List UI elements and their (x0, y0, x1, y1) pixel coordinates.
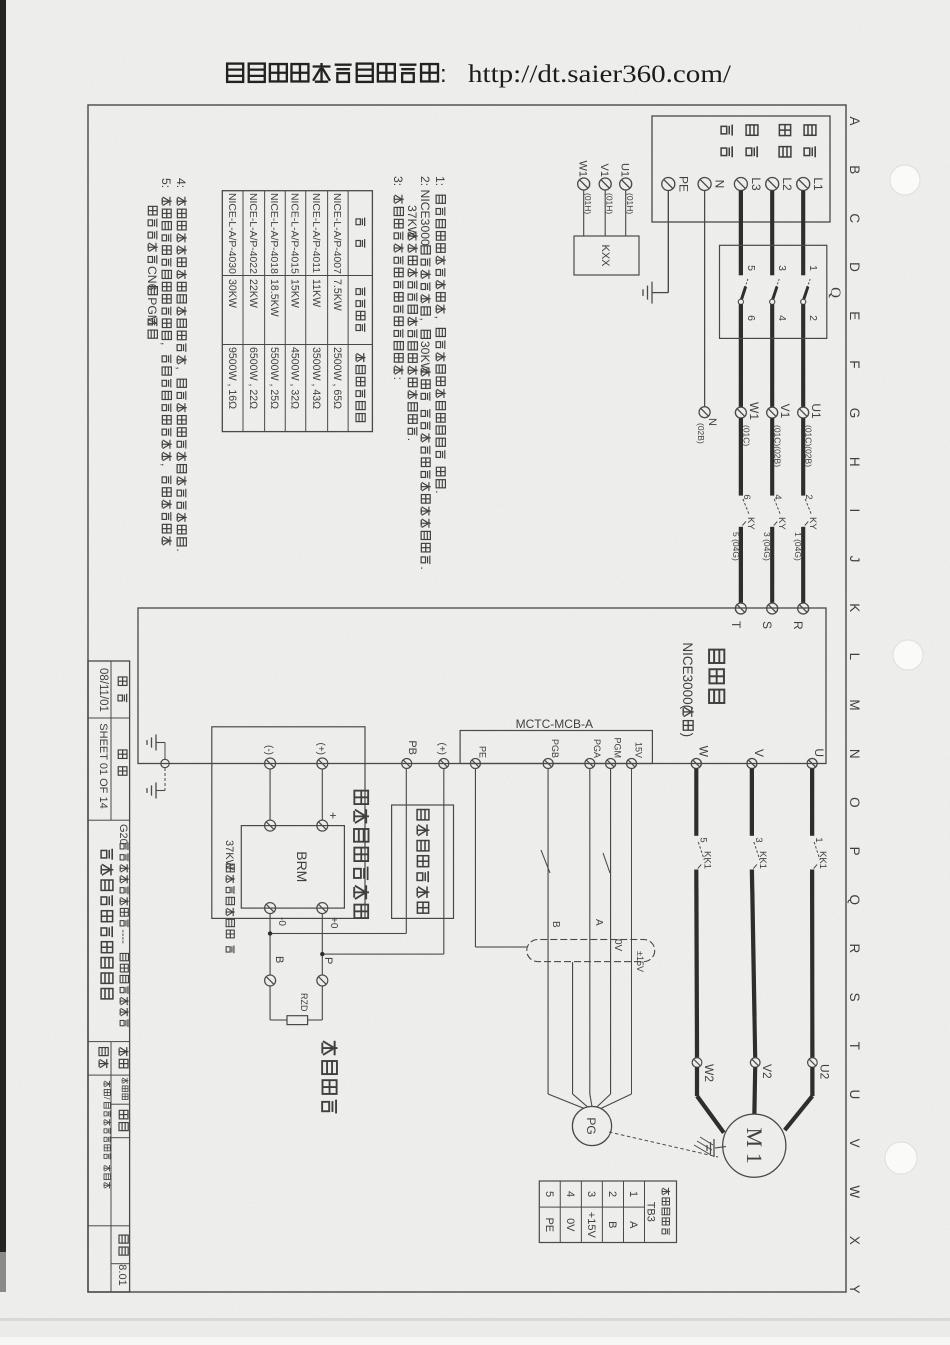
svg-text:3: 3 (776, 265, 788, 271)
svg-text:(01C)(02B): (01C)(02B) (773, 425, 783, 467)
svg-text:1: 1 (627, 1191, 639, 1197)
svg-text:(02B): (02B) (696, 423, 706, 444)
svg-text:N: N (847, 749, 862, 759)
svg-text:NICE-L-A/P-4030: NICE-L-A/P-4030 (226, 193, 237, 274)
svg-text:30KW: 30KW (226, 279, 238, 308)
svg-text::: : (440, 61, 447, 88)
svg-text:W: W (696, 746, 710, 758)
svg-text:W1: W1 (747, 402, 761, 420)
svg-text:2: 2 (807, 315, 819, 321)
svg-text:TB3: TB3 (645, 1202, 657, 1222)
svg-text:A: A (627, 1221, 639, 1229)
svg-text:2: NICE3000: 2: NICE3000 (418, 176, 432, 246)
svg-text:3500W , 43Ω: 3500W , 43Ω (310, 347, 322, 409)
svg-text:1: 1 (813, 837, 824, 842)
svg-text:X: X (847, 1236, 862, 1245)
svg-text:.: . (174, 548, 188, 551)
svg-text:L3: L3 (749, 177, 763, 191)
svg-text:PG: PG (584, 1117, 598, 1134)
svg-text:,: , (433, 316, 447, 319)
svg-text:NICE3000(: NICE3000( (680, 642, 695, 709)
svg-text:.: . (418, 566, 432, 569)
svg-text:H: H (847, 457, 862, 467)
svg-text:3: 3 (585, 1191, 597, 1197)
svg-text:BRM: BRM (294, 851, 310, 882)
svg-text:6: 6 (745, 315, 757, 321)
svg-text:3: 3 (753, 837, 764, 842)
svg-text:8.01: 8.01 (116, 1264, 128, 1285)
svg-text:L2: L2 (780, 177, 794, 191)
svg-text:15KW: 15KW (289, 279, 301, 308)
svg-text:N: N (706, 418, 718, 426)
svg-text:5: 5 (745, 265, 757, 271)
svg-text:+15V: +15V (585, 1212, 597, 1239)
svg-text:11KW: 11KW (310, 279, 322, 307)
svg-text:V1: V1 (778, 404, 792, 419)
svg-text:.: . (433, 490, 447, 493)
svg-text:RZD: RZD (299, 993, 309, 1012)
svg-text:Q: Q (827, 287, 843, 298)
svg-text:0V: 0V (612, 939, 623, 952)
svg-text:U: U (812, 748, 826, 757)
svg-text:KK1: KK1 (817, 851, 828, 869)
svg-text:PE: PE (543, 1217, 555, 1232)
svg-text:1:: 1: (433, 176, 447, 186)
svg-text:R: R (847, 944, 862, 954)
svg-text:NICE-L-A/P-4011: NICE-L-A/P-4011 (310, 193, 321, 273)
svg-text:1 (04G): 1 (04G) (793, 532, 803, 561)
svg-text:E: E (847, 311, 862, 320)
svg-text:37KW: 37KW (223, 840, 235, 871)
svg-text:1: 1 (807, 265, 819, 271)
svg-text:B: B (606, 1221, 618, 1228)
svg-text:D: D (847, 262, 862, 272)
svg-text:,: , (159, 463, 173, 466)
svg-text:,: , (174, 366, 188, 369)
svg-text:I: I (847, 509, 862, 513)
svg-text:KY: KY (807, 517, 818, 530)
svg-text:PGA: PGA (592, 739, 602, 758)
svg-text:6: 6 (741, 494, 752, 499)
svg-text:J: J (847, 556, 862, 563)
svg-text:5: 5 (543, 1191, 555, 1197)
svg-text:M 1: M 1 (742, 1128, 767, 1164)
svg-text:,: , (418, 318, 432, 321)
svg-text:W2: W2 (702, 1064, 716, 1082)
svg-text:(01H): (01H) (583, 193, 593, 214)
svg-text:): ) (680, 733, 695, 738)
svg-text:KXX: KXX (599, 244, 611, 267)
svg-text:,: , (159, 342, 173, 345)
svg-text:M: M (847, 699, 862, 710)
svg-text:4:: 4: (174, 178, 188, 188)
svg-text:----: ---- (117, 929, 129, 944)
svg-text:+: + (326, 812, 340, 819)
svg-text:4: 4 (776, 315, 788, 321)
svg-text:T: T (729, 621, 743, 629)
svg-text:5: 5 (697, 837, 708, 842)
svg-text:S: S (847, 993, 862, 1002)
svg-text:6500W , 22Ω: 6500W , 22Ω (247, 347, 259, 409)
svg-text:L1: L1 (811, 177, 825, 191)
svg-text:5500W , 25Ω: 5500W , 25Ω (268, 347, 280, 409)
svg-text:5 (04G): 5 (04G) (731, 532, 741, 561)
svg-text:KY: KY (745, 517, 756, 530)
svg-text:.: . (405, 438, 419, 441)
svg-text:L: L (847, 653, 862, 661)
svg-text:9500W , 16Ω: 9500W , 16Ω (226, 347, 238, 409)
svg-text:B: B (847, 165, 862, 174)
svg-text:T: T (847, 1042, 862, 1050)
svg-text:PE: PE (477, 746, 487, 758)
svg-text:(+): (+) (436, 743, 447, 756)
svg-text:O: O (847, 797, 862, 808)
svg-text:4: 4 (564, 1191, 576, 1197)
svg-text:7.5KW: 7.5KW (331, 279, 343, 311)
svg-text:3:: 3: (391, 176, 405, 186)
svg-text:PE: PE (676, 176, 690, 192)
svg-text:08/11/01: 08/11/01 (97, 668, 109, 712)
svg-text:(01H): (01H) (625, 193, 635, 214)
svg-text:3 (04G): 3 (04G) (762, 532, 772, 561)
svg-text:V2: V2 (760, 1064, 774, 1079)
svg-text:U: U (847, 1090, 862, 1100)
svg-text:(01C)(02B): (01C)(02B) (804, 425, 814, 467)
svg-text:4: 4 (772, 494, 783, 499)
svg-text:A: A (593, 919, 604, 926)
svg-text:Y: Y (847, 1285, 862, 1294)
svg-text:A: A (847, 116, 862, 125)
svg-text:G20: G20 (117, 824, 129, 845)
svg-text:NICE-L-A/P-4007: NICE-L-A/P-4007 (331, 193, 342, 274)
svg-text:G: G (847, 408, 862, 419)
svg-text::: : (391, 377, 405, 380)
svg-text:5:: 5: (159, 178, 173, 188)
svg-text:PGM: PGM (613, 737, 623, 758)
svg-text:B: B (550, 921, 561, 928)
svg-text:R: R (791, 621, 805, 630)
svg-text:PB: PB (406, 740, 418, 755)
svg-text:PGB: PGB (550, 739, 560, 758)
svg-text:U2: U2 (817, 1064, 831, 1080)
svg-text:SHEET 01 OF 14: SHEET 01 OF 14 (97, 723, 109, 808)
svg-text:2500W , 65Ω: 2500W , 65Ω (331, 347, 343, 409)
svg-text:NICE-L-A/P-4022: NICE-L-A/P-4022 (247, 193, 258, 274)
svg-text:(-): (-) (263, 745, 274, 755)
svg-text:V: V (847, 1139, 862, 1148)
svg-text:F: F (847, 360, 862, 368)
svg-text:MCTC-MCB-A: MCTC-MCB-A (516, 717, 593, 731)
svg-text:B: B (273, 956, 285, 963)
svg-text:18.5KW: 18.5KW (268, 279, 280, 317)
svg-text:NICE-L-A/P-4018: NICE-L-A/P-4018 (268, 193, 279, 274)
svg-text:KK1: KK1 (757, 851, 768, 869)
svg-text:P: P (322, 957, 334, 964)
svg-text:N: N (713, 180, 727, 189)
svg-text:(01H): (01H) (605, 193, 615, 214)
svg-text:C: C (847, 213, 862, 223)
svg-text:(+): (+) (315, 743, 326, 756)
svg-text:http://dt.saier360.com/: http://dt.saier360.com/ (468, 61, 731, 88)
svg-text:KY: KY (776, 517, 787, 530)
svg-text:W1: W1 (577, 161, 589, 178)
svg-text:P: P (847, 847, 862, 856)
svg-text:(01C): (01C) (741, 425, 751, 446)
svg-text:4500W , 32Ω: 4500W , 32Ω (289, 347, 301, 409)
svg-text:V1: V1 (598, 164, 610, 177)
svg-text:S: S (760, 621, 774, 629)
svg-text:22KW: 22KW (247, 279, 259, 308)
svg-text:0V: 0V (564, 1218, 576, 1232)
svg-text:NICE-L-A/P-4015: NICE-L-A/P-4015 (289, 193, 300, 274)
svg-text:W: W (847, 1185, 862, 1198)
svg-text:U1: U1 (619, 163, 631, 177)
svg-text:V: V (752, 749, 766, 757)
svg-text:2: 2 (803, 494, 814, 499)
svg-text:15V: 15V (634, 742, 644, 758)
svg-text:U1: U1 (809, 403, 823, 419)
svg-text:K: K (847, 603, 862, 612)
svg-text:2: 2 (606, 1191, 618, 1197)
svg-text:KK1: KK1 (701, 851, 712, 869)
svg-text:Q: Q (847, 894, 862, 905)
